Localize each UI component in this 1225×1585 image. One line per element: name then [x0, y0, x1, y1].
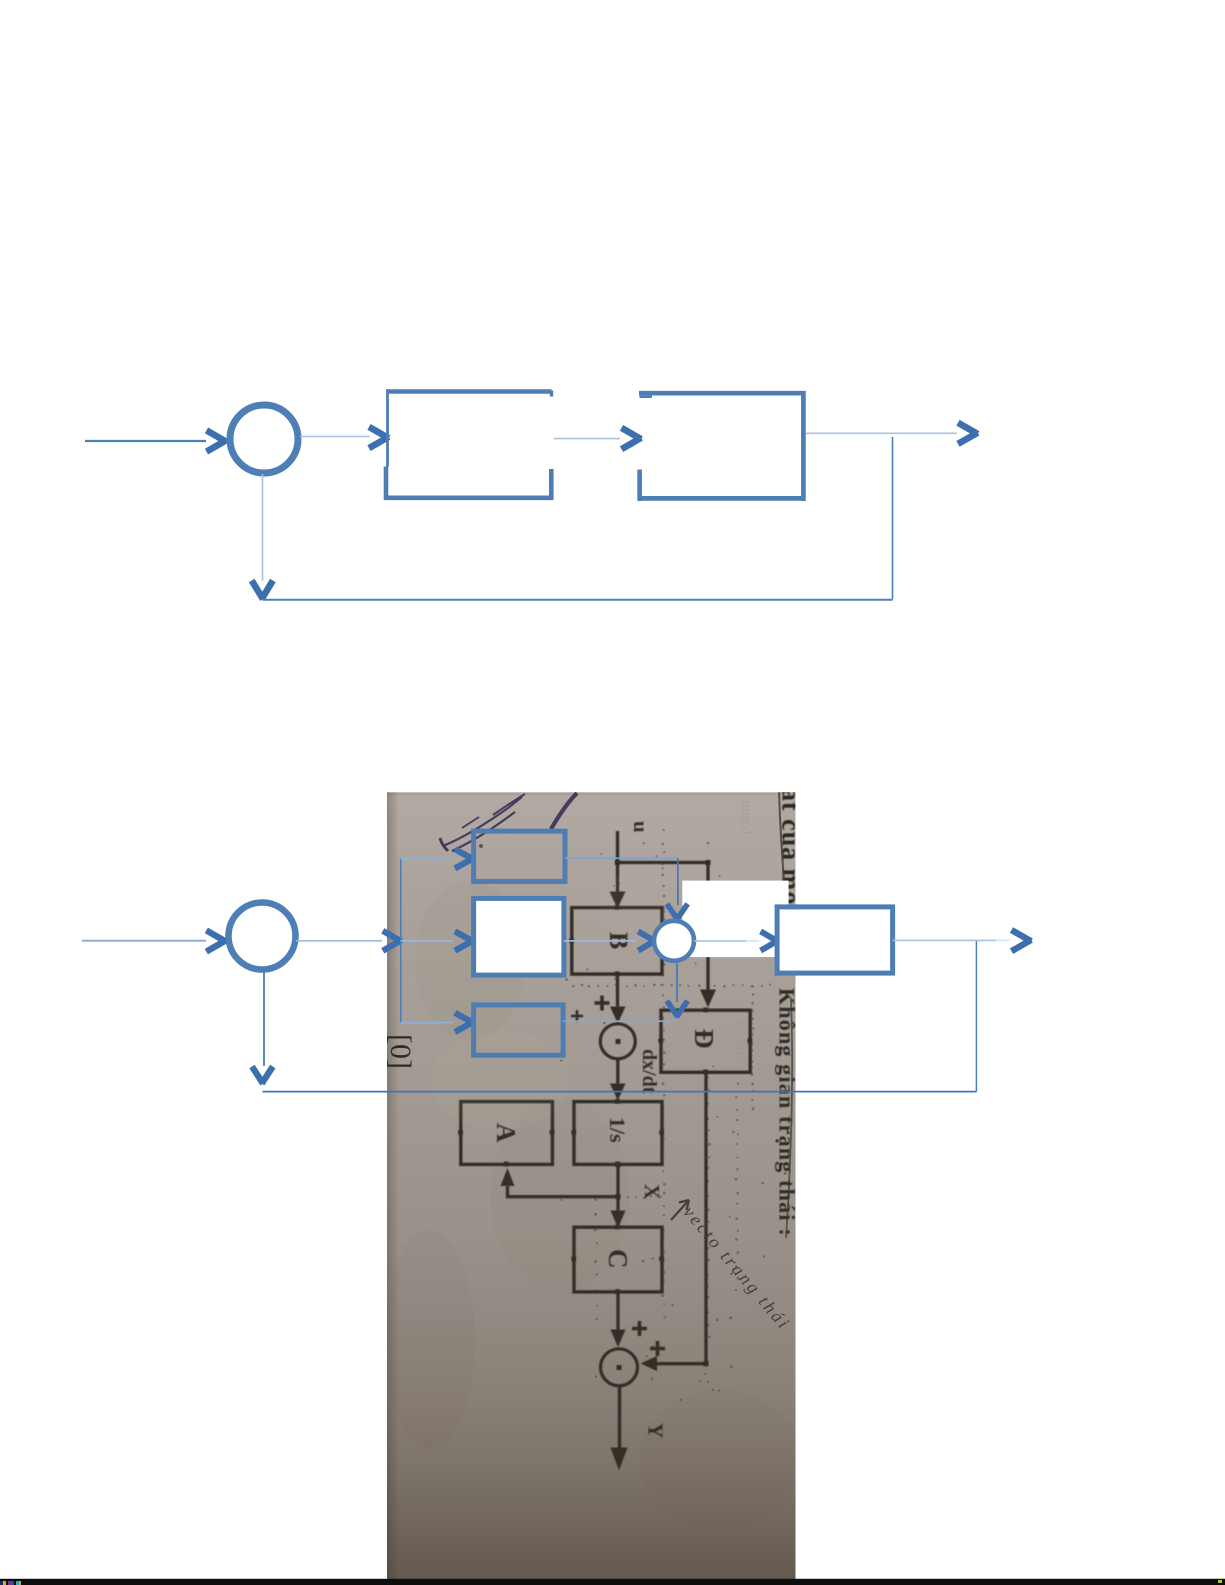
svg-text:ổn định ng: ổn định ng	[768, 1268, 785, 1336]
svg-text:Không gian trạng thái :: Không gian trạng thái :	[775, 988, 800, 1237]
svg-text:ưng d: ưng d	[738, 800, 754, 835]
svg-text:Ð: Ð	[689, 1029, 719, 1049]
svg-text:dx/dt: dx/dt	[638, 1049, 660, 1094]
svg-text:u: u	[629, 821, 653, 833]
svg-text:[0]: [0]	[384, 1034, 417, 1069]
svg-text:ch mô: ch mô	[731, 1022, 750, 1064]
